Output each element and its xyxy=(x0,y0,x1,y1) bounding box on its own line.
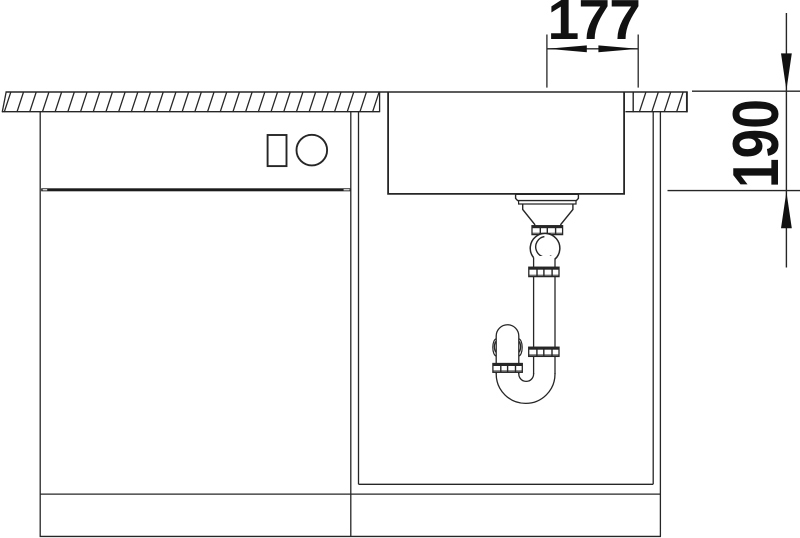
svg-text:190: 190 xyxy=(719,99,792,188)
svg-text:177: 177 xyxy=(547,0,640,52)
